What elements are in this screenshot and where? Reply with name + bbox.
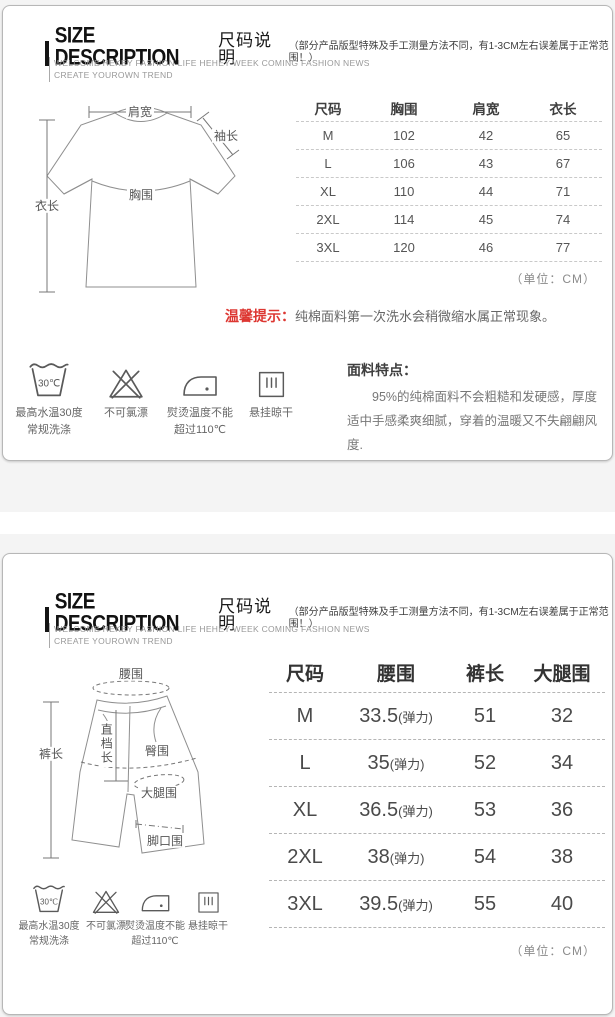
label-hip: 臀围 bbox=[143, 744, 171, 758]
table-header-row: 尺码 胸围 肩宽 衣长 bbox=[296, 94, 602, 122]
care-label-no-bleach: 不可氯漂 bbox=[91, 405, 161, 422]
cell-length: 67 bbox=[524, 156, 602, 171]
warm-tip-label: 温馨提示： bbox=[225, 308, 295, 324]
col-header-waist: 腰围 bbox=[341, 659, 451, 686]
cell-shoulder: 45 bbox=[448, 212, 524, 227]
cell-length: 74 bbox=[524, 212, 602, 227]
cell-chest: 106 bbox=[360, 156, 448, 171]
warm-tip: 温馨提示：纯棉面料第一次洗水会稍微缩水属正常现象。 bbox=[225, 306, 555, 326]
section-gap-band bbox=[0, 512, 615, 534]
cell-size: L bbox=[269, 752, 341, 775]
cell-waist: 39.5(弹力) bbox=[341, 893, 451, 916]
col-header-thigh: 大腿围 bbox=[519, 659, 605, 686]
col-header-shoulder: 肩宽 bbox=[448, 98, 524, 118]
label-rise: 直档长 bbox=[99, 721, 113, 767]
cell-size: 2XL bbox=[269, 846, 341, 869]
tshirt-diagram: 肩宽 袖长 衣长 胸围 bbox=[19, 88, 287, 302]
table-row: 3XL 39.5(弹力) 55 40 bbox=[269, 881, 605, 928]
cell-thigh: 38 bbox=[519, 846, 605, 869]
care-label-hang-dry: 悬挂晾干 bbox=[241, 405, 301, 422]
table-header-row: 尺码 腰围 裤长 大腿围 bbox=[269, 652, 605, 693]
care-item-hang-dry: 悬挂晾干 bbox=[241, 358, 301, 422]
col-header-size: 尺码 bbox=[296, 98, 360, 118]
svg-text:30℃: 30℃ bbox=[38, 379, 60, 390]
table-row: M 33.5(弹力) 51 32 bbox=[269, 693, 605, 740]
table-row: L 35(弹力) 52 34 bbox=[269, 740, 605, 787]
shorts-diagram: 腰围 裤长 直档长 臀围 大腿围 脚口围 bbox=[17, 652, 267, 880]
cell-shoulder: 46 bbox=[448, 240, 524, 255]
cell-chest: 114 bbox=[360, 212, 448, 227]
label-thigh: 大腿围 bbox=[139, 786, 179, 800]
table-row: XL 36.5(弹力) 53 36 bbox=[269, 787, 605, 834]
care-label-wash: 最高水温30度常规洗涤 bbox=[9, 405, 89, 438]
tagline-2: CREATE YOUROWN TREND bbox=[54, 635, 370, 647]
table-row: M 102 42 65 bbox=[296, 122, 602, 150]
shorts-size-panel: SIZE DESCRIPTION 尺码说明 （部分产品版型特殊及手工测量方法不同… bbox=[2, 553, 613, 1015]
fabric-features: 面料特点： 95%的纯棉面料不会粗糙和发硬感，厚度适中手感柔爽细腻，穿着的温暖又… bbox=[347, 360, 605, 457]
cell-waist: 33.5(弹力) bbox=[341, 705, 451, 728]
hang-dry-icon bbox=[196, 890, 221, 915]
cell-length: 52 bbox=[451, 752, 519, 775]
unit-note: （单位：CM） bbox=[510, 270, 596, 287]
hang-dry-icon bbox=[256, 369, 287, 400]
shorts-size-table: 尺码 腰围 裤长 大腿围 M 33.5(弹力) 51 32 L 35(弹力) 5… bbox=[269, 652, 605, 928]
table-row: L 106 43 67 bbox=[296, 150, 602, 178]
iron-icon bbox=[180, 369, 220, 400]
shorts-drawing-icon bbox=[17, 652, 267, 880]
care-label-iron: 熨烫温度不能超过110℃ bbox=[157, 405, 243, 438]
table-row: 3XL 120 46 77 bbox=[296, 234, 602, 262]
label-chest: 胸围 bbox=[127, 188, 155, 202]
cell-size: 3XL bbox=[269, 893, 341, 916]
care-item-hang-dry: 悬挂晾干 bbox=[179, 882, 237, 934]
tshirt-size-panel: SIZE DESCRIPTION 尺码说明 （部分产品版型特殊及手工测量方法不同… bbox=[2, 5, 613, 461]
col-header-chest: 胸围 bbox=[360, 98, 448, 118]
cell-size: XL bbox=[269, 799, 341, 822]
cell-length: 71 bbox=[524, 184, 602, 199]
cell-chest: 102 bbox=[360, 128, 448, 143]
cell-size: 3XL bbox=[296, 240, 360, 255]
cell-length: 51 bbox=[451, 705, 519, 728]
label-garment-length: 衣长 bbox=[33, 199, 61, 213]
cell-thigh: 40 bbox=[519, 893, 605, 916]
taglines: WELCOME HEKEY FASHION LIFE HEHEY WEEK CO… bbox=[49, 57, 370, 82]
cell-size: M bbox=[296, 128, 360, 143]
care-item-iron: 熨烫温度不能超过110℃ bbox=[157, 358, 243, 438]
cell-thigh: 36 bbox=[519, 799, 605, 822]
cell-size: L bbox=[296, 156, 360, 171]
no-bleach-icon bbox=[107, 366, 145, 400]
label-leg-opening: 脚口围 bbox=[145, 834, 185, 848]
cell-length: 54 bbox=[451, 846, 519, 869]
table-row: 2XL 38(弹力) 54 38 bbox=[269, 834, 605, 881]
cell-length: 65 bbox=[524, 128, 602, 143]
fabric-title: 面料特点： bbox=[347, 360, 605, 380]
care-item-no-bleach: 不可氯漂 bbox=[91, 358, 161, 422]
cell-size: M bbox=[269, 705, 341, 728]
col-header-size: 尺码 bbox=[269, 659, 341, 686]
cell-thigh: 34 bbox=[519, 752, 605, 775]
label-sleeve-length: 袖长 bbox=[212, 129, 240, 143]
cell-chest: 120 bbox=[360, 240, 448, 255]
cell-length: 55 bbox=[451, 893, 519, 916]
table-row: 2XL 114 45 74 bbox=[296, 206, 602, 234]
label-shoulder-width: 肩宽 bbox=[126, 105, 154, 119]
tagline-1: WELCOME HEKEY FASHION LIFE HEHEY WEEK CO… bbox=[54, 57, 370, 69]
fabric-text: 95%的纯棉面料不会粗糙和发硬感，厚度适中手感柔爽细腻，穿着的温暖又不失翩翩风度… bbox=[347, 386, 605, 457]
label-pants-length: 裤长 bbox=[37, 747, 65, 761]
cell-waist: 35(弹力) bbox=[341, 752, 451, 775]
unit-note: （单位：CM） bbox=[510, 942, 596, 959]
cell-size: 2XL bbox=[296, 212, 360, 227]
cell-waist: 36.5(弹力) bbox=[341, 799, 451, 822]
cell-size: XL bbox=[296, 184, 360, 199]
cell-thigh: 32 bbox=[519, 705, 605, 728]
no-bleach-icon bbox=[91, 888, 121, 915]
cell-shoulder: 44 bbox=[448, 184, 524, 199]
cell-waist: 38(弹力) bbox=[341, 846, 451, 869]
label-waist: 腰围 bbox=[117, 667, 145, 681]
care-label-hang-dry: 悬挂晾干 bbox=[179, 919, 237, 934]
cell-length: 53 bbox=[451, 799, 519, 822]
tagline-1: WELCOME HEKEY FASHION LIFE HEHEY WEEK CO… bbox=[54, 623, 370, 635]
svg-text:30℃: 30℃ bbox=[40, 897, 58, 906]
iron-icon bbox=[139, 889, 172, 915]
wash-30-icon: 30℃ bbox=[31, 883, 67, 915]
table-row: XL 110 44 71 bbox=[296, 178, 602, 206]
col-header-length: 裤长 bbox=[451, 659, 519, 686]
cell-length: 77 bbox=[524, 240, 602, 255]
care-item-wash: 30℃ 最高水温30度常规洗涤 bbox=[9, 358, 89, 438]
cell-shoulder: 43 bbox=[448, 156, 524, 171]
taglines: WELCOME HEKEY FASHION LIFE HEHEY WEEK CO… bbox=[49, 623, 370, 648]
cell-shoulder: 42 bbox=[448, 128, 524, 143]
tshirt-size-table: 尺码 胸围 肩宽 衣长 M 102 42 65 L 106 43 67 XL 1… bbox=[296, 94, 602, 262]
tagline-2: CREATE YOUROWN TREND bbox=[54, 69, 370, 81]
wash-30-icon: 30℃ bbox=[27, 360, 71, 400]
cell-chest: 110 bbox=[360, 184, 448, 199]
col-header-length: 衣长 bbox=[524, 98, 602, 118]
warm-tip-text: 纯棉面料第一次洗水会稍微缩水属正常现象。 bbox=[295, 309, 555, 324]
